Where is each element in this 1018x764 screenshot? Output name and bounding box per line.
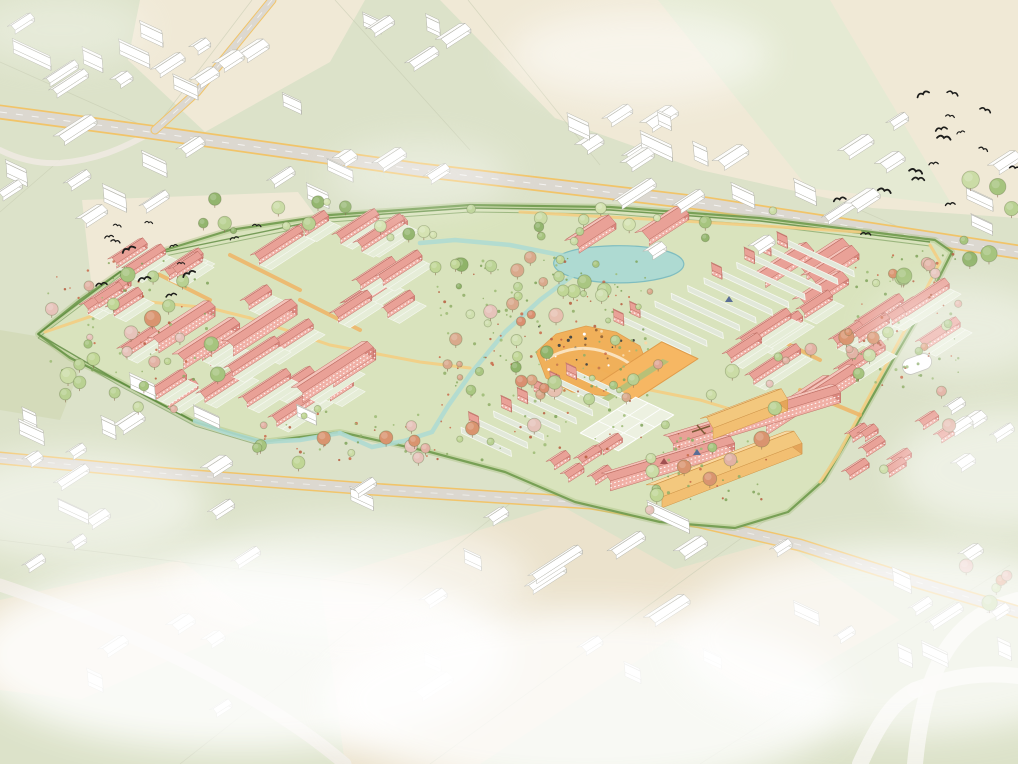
masterplan-svg bbox=[0, 0, 1018, 764]
fog-cloud bbox=[330, 140, 510, 210]
masterplan-illustration bbox=[0, 0, 1018, 764]
fog-cloud bbox=[170, 520, 530, 640]
fog-cloud bbox=[510, 10, 770, 100]
